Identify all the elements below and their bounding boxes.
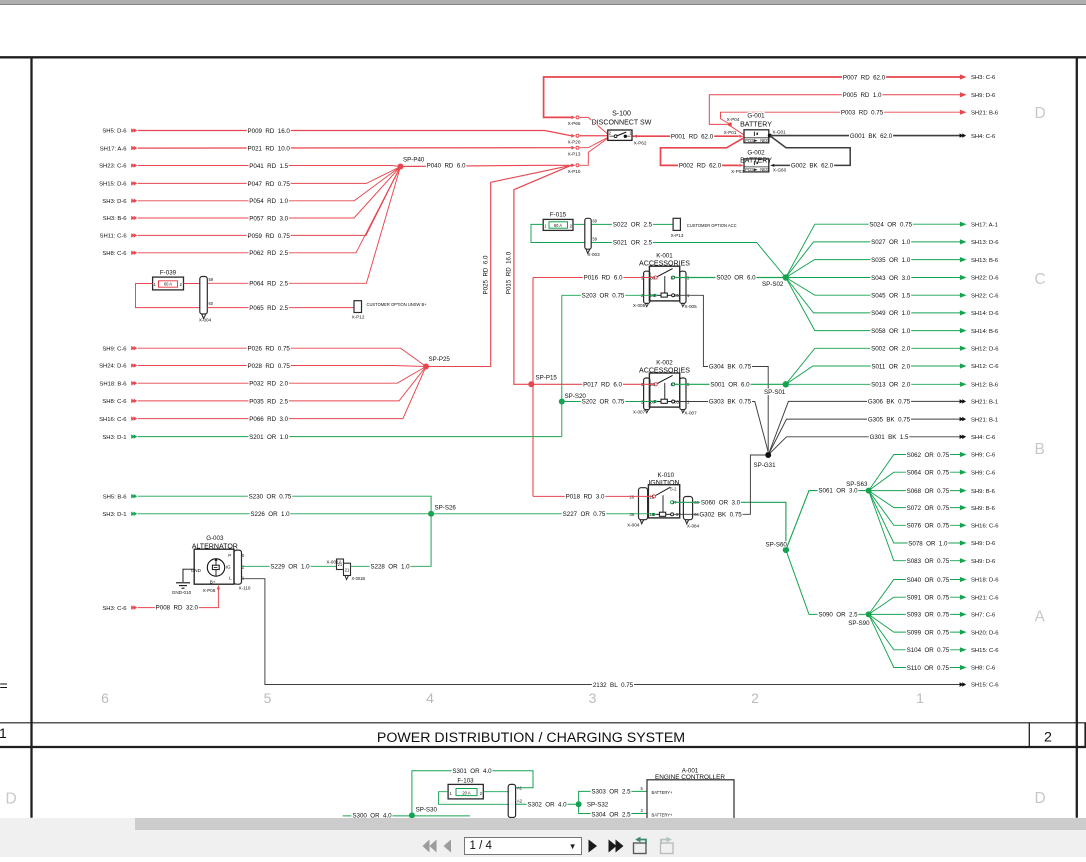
svg-text:SH4: C-6: SH4: C-6 — [971, 435, 996, 441]
svg-text:SH9: D-6: SH9: D-6 — [971, 541, 996, 547]
svg-text:P003 RD 0.75: P003 RD 0.75 — [841, 110, 884, 117]
svg-text:S228 OR 1.0: S228 OR 1.0 — [370, 563, 410, 570]
svg-text:F-039: F-039 — [160, 269, 177, 276]
svg-text:SP-S20: SP-S20 — [565, 393, 587, 400]
svg-text:=: = — [0, 678, 8, 694]
svg-text:SP-S30: SP-S30 — [416, 807, 438, 814]
svg-text:SH11: C-6: SH11: C-6 — [100, 234, 128, 240]
svg-text:A2: A2 — [517, 798, 523, 803]
svg-text:S093 OR 0.75: S093 OR 0.75 — [907, 612, 950, 619]
svg-text:P040 RD 6.0: P040 RD 6.0 — [427, 162, 466, 169]
svg-text:SP-S26: SP-S26 — [435, 504, 457, 511]
svg-text:X-P13: X-P13 — [671, 233, 684, 238]
svg-text:P054 RD 1.0: P054 RD 1.0 — [249, 198, 288, 205]
svg-text:P065 RD 2.5: P065 RD 2.5 — [249, 305, 288, 312]
svg-text:P026 RD 0.75: P026 RD 0.75 — [248, 346, 291, 353]
svg-text:S021 OR 2.5: S021 OR 2.5 — [613, 240, 653, 247]
svg-text:SH22: C-6: SH22: C-6 — [971, 293, 999, 299]
svg-text:A1: A1 — [517, 786, 523, 791]
svg-text:SH20: D-6: SH20: D-6 — [971, 630, 999, 636]
svg-text:D: D — [1035, 790, 1046, 807]
svg-text:S201 OR 1.0: S201 OR 1.0 — [249, 434, 289, 441]
svg-text:60: 60 — [209, 301, 214, 306]
svg-text:S001 OR 6.0: S001 OR 6.0 — [710, 381, 750, 388]
svg-text:SH9: B-6: SH9: B-6 — [971, 489, 996, 495]
svg-text:G-001: G-001 — [747, 113, 765, 120]
svg-text:P009 RD 16.0: P009 RD 16.0 — [248, 128, 291, 135]
svg-text:POS: POS — [745, 167, 754, 172]
svg-text:G306 BK 0.75: G306 BK 0.75 — [868, 399, 911, 406]
svg-text:G002 BK 62.0: G002 BK 62.0 — [791, 163, 834, 170]
svg-text:G304 BK 0.75: G304 BK 0.75 — [709, 364, 752, 371]
svg-text:X-007: X-007 — [633, 409, 646, 414]
svg-text:X-P08: X-P08 — [203, 588, 216, 593]
svg-text:CUSTOMER OPTION ACC: CUSTOMER OPTION ACC — [687, 223, 737, 228]
svg-text:K-010: K-010 — [658, 472, 675, 479]
svg-text:SH3: C-6: SH3: C-6 — [971, 75, 996, 81]
svg-text:SP-S90: SP-S90 — [848, 620, 870, 627]
svg-text:DISCONNECT SW: DISCONNECT SW — [592, 120, 652, 127]
svg-text:G-003: G-003 — [206, 535, 224, 542]
svg-text:59: 59 — [593, 237, 598, 242]
svg-text:SH17: A-1: SH17: A-1 — [971, 222, 998, 228]
svg-text:P025 RD 6.0: P025 RD 6.0 — [482, 255, 489, 294]
svg-text:S302 OR 4.0: S302 OR 4.0 — [527, 801, 567, 808]
svg-text:P032 RD 2.0: P032 RD 2.0 — [249, 381, 288, 388]
svg-text:P059 RD 0.75: P059 RD 0.75 — [248, 233, 291, 240]
svg-text:S002 OR 2.0: S002 OR 2.0 — [871, 346, 911, 353]
svg-text:S-2: S-2 — [670, 487, 677, 492]
svg-text:BATTERY: BATTERY — [740, 121, 772, 128]
svg-text:P028 RD 0.75: P028 RD 0.75 — [248, 363, 291, 370]
svg-text:S110 OR 0.75: S110 OR 0.75 — [907, 665, 950, 672]
svg-text:S303 OR 2.5: S303 OR 2.5 — [591, 789, 631, 796]
svg-text:IG: IG — [226, 564, 231, 569]
svg-text:K-002: K-002 — [656, 360, 673, 367]
svg-text:SH9: B-6: SH9: B-6 — [971, 506, 996, 512]
svg-text:X-G60: X-G60 — [773, 168, 787, 173]
svg-text:16: 16 — [649, 512, 654, 517]
svg-text:G301 BK 1.5: G301 BK 1.5 — [870, 434, 909, 441]
svg-text:60: 60 — [593, 219, 598, 224]
svg-text:S043 OR 3.0: S043 OR 3.0 — [871, 275, 911, 282]
svg-text:SP-P15: SP-P15 — [536, 375, 558, 382]
svg-text:SH15: C-6: SH15: C-6 — [971, 683, 999, 689]
svg-text:SP-S32: SP-S32 — [587, 802, 609, 809]
svg-text:SH12: C-6: SH12: C-6 — [971, 364, 999, 370]
svg-text:S060 OR 3.0: S060 OR 3.0 — [701, 499, 741, 506]
svg-text:D: D — [1035, 105, 1046, 122]
svg-text:SH18: D-6: SH18: D-6 — [971, 578, 999, 584]
svg-text:0: 0 — [242, 553, 245, 558]
svg-text:1: 1 — [0, 725, 7, 741]
svg-text:P007 RD 62.0: P007 RD 62.0 — [843, 74, 886, 81]
svg-text:P001 RD 62.0: P001 RD 62.0 — [671, 134, 714, 141]
svg-text:SH4: C-6: SH4: C-6 — [971, 134, 996, 140]
svg-text:G303 BK 0.75: G303 BK 0.75 — [709, 399, 752, 406]
svg-text:K-001: K-001 — [656, 253, 673, 260]
svg-text:2: 2 — [751, 690, 759, 706]
svg-text:NEG: NEG — [760, 167, 769, 172]
svg-text:P002 RD 62.0: P002 RD 62.0 — [679, 163, 722, 170]
svg-text:SH9: D-6: SH9: D-6 — [971, 559, 996, 565]
svg-text:NEG: NEG — [760, 138, 769, 143]
svg-text:SH23: C-6: SH23: C-6 — [99, 164, 127, 170]
svg-text:X-005: X-005 — [684, 304, 697, 309]
svg-text:S072 OR 0.75: S072 OR 0.75 — [907, 505, 950, 512]
svg-text:SP-S63: SP-S63 — [846, 481, 868, 488]
svg-text:X-P01: X-P01 — [724, 130, 737, 135]
svg-text:F-015: F-015 — [550, 212, 567, 219]
svg-text:POWER DISTRIBUTION / CHARGING: POWER DISTRIBUTION / CHARGING SYSTEM — [377, 730, 685, 746]
svg-text:X-P13: X-P13 — [568, 152, 581, 157]
svg-text:X-P10: X-P10 — [568, 169, 581, 174]
svg-text:S027 OR 1.0: S027 OR 1.0 — [871, 239, 911, 246]
svg-text:CUSTOMER OPTION UNSW B+: CUSTOMER OPTION UNSW B+ — [367, 302, 428, 307]
svg-text:4: 4 — [426, 690, 434, 706]
svg-text:SP-P25: SP-P25 — [429, 356, 451, 363]
svg-text:3: 3 — [589, 690, 597, 706]
svg-text:D: D — [6, 791, 17, 808]
svg-text:S049 OR 1.0: S049 OR 1.0 — [871, 310, 911, 317]
svg-text:S078 OR 1.0: S078 OR 1.0 — [908, 540, 948, 547]
svg-text:SH3: C-6: SH3: C-6 — [102, 606, 127, 612]
svg-text:P005 RD 1.0: P005 RD 1.0 — [843, 92, 882, 99]
svg-text:SP-S60: SP-S60 — [766, 541, 788, 548]
svg-text:G305 BK 0.75: G305 BK 0.75 — [868, 416, 911, 423]
svg-text:SP-P40: SP-P40 — [403, 156, 425, 163]
svg-text:SH3: D-6: SH3: D-6 — [102, 199, 127, 205]
svg-text:SP-G31: SP-G31 — [754, 462, 777, 469]
svg-text:S061 OR 3.0: S061 OR 3.0 — [818, 488, 858, 495]
svg-text:P018 RD 3.0: P018 RD 3.0 — [566, 494, 605, 501]
svg-text:SP-S02: SP-S02 — [762, 281, 784, 288]
svg-text:X-005: X-005 — [633, 303, 646, 308]
svg-text:2: 2 — [1044, 730, 1052, 746]
svg-text:SH9: C-6: SH9: C-6 — [971, 453, 996, 459]
svg-text:SH5: D-6: SH5: D-6 — [102, 129, 127, 135]
svg-text:S024 OR 0.75: S024 OR 0.75 — [869, 222, 912, 229]
svg-text:SH21: B-1: SH21: B-1 — [971, 417, 998, 423]
svg-text:G302 BK 0.75: G302 BK 0.75 — [699, 511, 742, 518]
svg-text:P035 RD 2.5: P035 RD 2.5 — [249, 398, 288, 405]
svg-text:P021 RD 10.0: P021 RD 10.0 — [248, 146, 291, 153]
svg-text:SH18: B-6: SH18: B-6 — [99, 381, 127, 387]
svg-text:S068 OR 0.75: S068 OR 0.75 — [907, 488, 950, 495]
svg-text:SH15: D-6: SH15: D-6 — [99, 182, 127, 188]
svg-text:S013 OR 2.0: S013 OR 2.0 — [871, 382, 911, 389]
svg-text:SH13: B-6: SH13: B-6 — [971, 258, 999, 264]
svg-text:P017 RD 6.0: P017 RD 6.0 — [583, 381, 622, 388]
svg-text:S040 OR 0.75: S040 OR 0.75 — [907, 577, 950, 584]
svg-text:SH21: C-6: SH21: C-6 — [971, 595, 999, 601]
svg-text:S202 OR 0.75: S202 OR 0.75 — [582, 399, 625, 406]
svg-text:59: 59 — [209, 277, 214, 282]
svg-text:C: C — [1035, 271, 1046, 288]
svg-text:SH3: B-6: SH3: B-6 — [103, 216, 128, 222]
svg-text:G-002: G-002 — [747, 149, 765, 156]
svg-text:2132 BL 0.75: 2132 BL 0.75 — [593, 682, 634, 689]
svg-text:SH8: C-6: SH8: C-6 — [971, 666, 996, 672]
svg-text:S226 OR 1.0: S226 OR 1.0 — [250, 511, 290, 518]
svg-text:SH15: C-6: SH15: C-6 — [971, 648, 999, 654]
svg-text:X-P04: X-P04 — [727, 117, 740, 122]
svg-text:X-007: X-007 — [684, 410, 697, 415]
svg-text:S230 OR 0.75: S230 OR 0.75 — [249, 494, 292, 501]
svg-text:S035 OR 1.0: S035 OR 1.0 — [871, 257, 911, 264]
svg-text:SH17: A-6: SH17: A-6 — [100, 146, 128, 152]
svg-text:2: 2 — [242, 564, 245, 569]
svg-text:SH7: C-6: SH7: C-6 — [971, 613, 996, 619]
svg-text:SH3: D-1: SH3: D-1 — [102, 512, 126, 518]
svg-text:S090 OR 2.5: S090 OR 2.5 — [818, 612, 858, 619]
svg-text:X-P03: X-P03 — [731, 169, 744, 174]
svg-text:X-P65: X-P65 — [568, 121, 581, 126]
svg-text:L: L — [229, 576, 232, 581]
svg-text:X-G01: X-G01 — [772, 129, 786, 134]
svg-text:X-084: X-084 — [687, 524, 700, 529]
svg-text:SH22: D-6: SH22: D-6 — [971, 276, 999, 282]
svg-text:SH9: D-6: SH9: D-6 — [971, 93, 996, 99]
svg-text:6: 6 — [101, 690, 109, 706]
svg-text:1: 1 — [242, 576, 245, 581]
svg-text:SH24: D-6: SH24: D-6 — [99, 364, 127, 370]
svg-text:S229 OR 1.0: S229 OR 1.0 — [270, 563, 310, 570]
svg-text:SH9: C-6: SH9: C-6 — [102, 346, 127, 352]
svg-text:X-P62: X-P62 — [634, 141, 647, 146]
svg-text:P064 RD 2.5: P064 RD 2.5 — [249, 281, 288, 288]
svg-text:S083 OR 0.75: S083 OR 0.75 — [907, 558, 950, 565]
svg-text:SP-S01: SP-S01 — [764, 389, 786, 396]
svg-text:S227 OR 0.75: S227 OR 0.75 — [563, 511, 606, 518]
svg-text:S099 OR 0.75: S099 OR 0.75 — [907, 629, 950, 636]
svg-text:5: 5 — [264, 690, 272, 706]
svg-text:S-100: S-100 — [612, 111, 631, 118]
svg-text:1: 1 — [916, 690, 924, 706]
svg-text:S076 OR 0.75: S076 OR 0.75 — [907, 523, 950, 530]
svg-text:P062 RD 2.5: P062 RD 2.5 — [249, 250, 288, 257]
svg-text:B+: B+ — [210, 579, 216, 584]
svg-text:SH9: C-6: SH9: C-6 — [971, 470, 996, 476]
svg-text:BATTERY+: BATTERY+ — [652, 790, 674, 795]
svg-text:P057 RD 3.0: P057 RD 3.0 — [249, 215, 288, 222]
svg-text:S301 OR 4.0: S301 OR 4.0 — [452, 768, 492, 775]
svg-text:SH13: D-6: SH13: D-6 — [971, 240, 999, 246]
svg-text:P041 RD 1.5: P041 RD 1.5 — [249, 163, 288, 170]
svg-text:60 A: 60 A — [164, 282, 172, 287]
svg-text:36: 36 — [630, 512, 635, 517]
svg-text:POS: POS — [745, 138, 754, 143]
svg-text:20 A: 20 A — [462, 791, 470, 796]
svg-text:SH5: B-6: SH5: B-6 — [103, 494, 128, 500]
svg-text:X-001A: X-001A — [326, 560, 342, 565]
svg-text:SH21: B-1: SH21: B-1 — [971, 400, 998, 406]
svg-text:X-110: X-110 — [239, 586, 251, 591]
svg-text:SH14: D-6: SH14: D-6 — [971, 311, 999, 317]
svg-text:SH16: C-6: SH16: C-6 — [971, 524, 999, 530]
svg-text:S091 OR 0.75: S091 OR 0.75 — [907, 595, 950, 602]
svg-text:F-103: F-103 — [457, 777, 474, 784]
svg-text:P066 RD 3.0: P066 RD 3.0 — [249, 416, 288, 423]
svg-text:G001 BK 62.0: G001 BK 62.0 — [850, 133, 893, 140]
svg-text:SH16: C-6: SH16: C-6 — [99, 417, 127, 423]
svg-text:X-001B: X-001B — [352, 576, 366, 581]
svg-text:A: A — [1035, 609, 1046, 626]
svg-text:X-004: X-004 — [627, 523, 640, 528]
svg-text:S064 OR 0.75: S064 OR 0.75 — [907, 470, 950, 477]
svg-text:S203 OR 0.75: S203 OR 0.75 — [582, 292, 625, 299]
svg-text:P: P — [228, 553, 231, 558]
svg-text:S058 OR 1.0: S058 OR 1.0 — [871, 328, 911, 335]
svg-text:SH3: D-1: SH3: D-1 — [102, 435, 126, 441]
svg-text:X-004: X-004 — [199, 318, 212, 323]
svg-text:P008 RD 32.0: P008 RD 32.0 — [156, 605, 199, 612]
svg-text:SH8: C-6: SH8: C-6 — [102, 399, 127, 405]
svg-text:B: B — [1035, 441, 1045, 458]
svg-text:SH12: B-6: SH12: B-6 — [971, 383, 999, 389]
svg-text:SH8: C-6: SH8: C-6 — [102, 251, 127, 257]
svg-text:BATTERY+: BATTERY+ — [652, 812, 674, 817]
svg-text:P047 RD 0.75: P047 RD 0.75 — [248, 181, 291, 188]
svg-text:S022 OR 2.5: S022 OR 2.5 — [613, 222, 653, 229]
svg-text:60 A: 60 A — [554, 223, 562, 228]
svg-text:X-P12: X-P12 — [352, 315, 365, 320]
svg-text:X-003: X-003 — [587, 252, 600, 257]
svg-text:GND-010: GND-010 — [172, 590, 192, 595]
svg-text:S104 OR 0.75: S104 OR 0.75 — [907, 647, 950, 654]
svg-text:X-P20: X-P20 — [568, 140, 581, 145]
svg-text:SH21: B-6: SH21: B-6 — [971, 110, 999, 116]
svg-text:S020 OR 6.0: S020 OR 6.0 — [716, 275, 756, 282]
svg-text:SH12: D-6: SH12: D-6 — [971, 347, 999, 353]
svg-text:S045 OR 1.5: S045 OR 1.5 — [871, 293, 911, 300]
svg-text:P016 RD 6.0: P016 RD 6.0 — [584, 275, 623, 282]
svg-text:S062 OR 0.75: S062 OR 0.75 — [907, 452, 950, 459]
svg-text:S011 OR 2.0: S011 OR 2.0 — [871, 363, 910, 370]
svg-text:21: 21 — [345, 567, 350, 572]
svg-text:P015 RD 16.0: P015 RD 16.0 — [506, 251, 513, 294]
svg-text:SH14: B-6: SH14: B-6 — [971, 329, 999, 335]
